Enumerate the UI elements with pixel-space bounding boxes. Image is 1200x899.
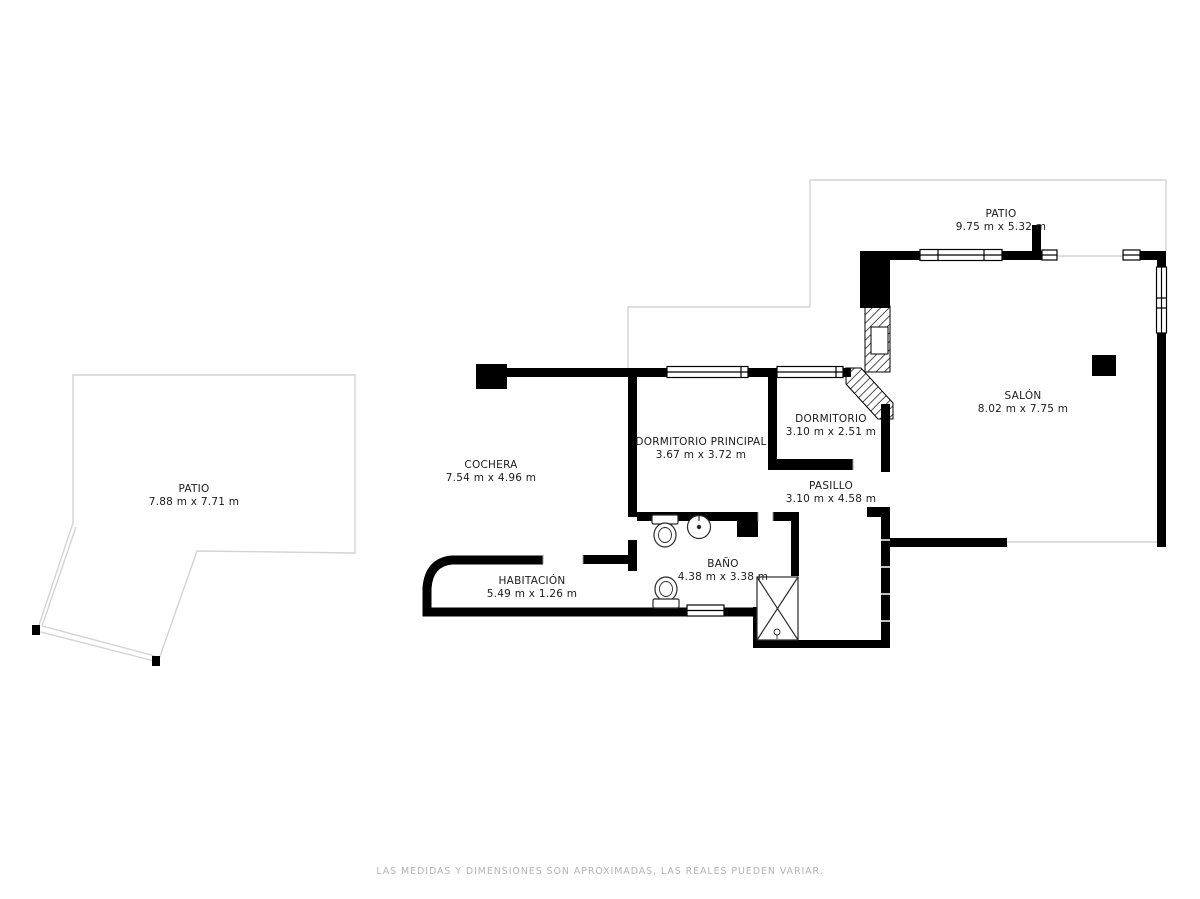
- room-dimensions: 7.88 m x 7.71 m: [149, 496, 240, 509]
- room-dimensions: 3.10 m x 4.58 m: [786, 493, 877, 506]
- room-dimensions: 9.75 m x 5.32 m: [956, 221, 1047, 234]
- room-name: PASILLO: [786, 480, 877, 493]
- room-name: DORMITORIO PRINCIPAL: [635, 436, 766, 449]
- room-dimensions: 3.10 m x 2.51 m: [786, 426, 877, 439]
- room-name: COCHERA: [446, 459, 537, 472]
- room-name: DORMITORIO: [786, 413, 877, 426]
- room-label-dormitorio-principal: DORMITORIO PRINCIPAL 3.67 m x 3.72 m: [635, 436, 766, 461]
- window-dormitorio: [777, 367, 843, 378]
- floor-plan-drawing: [0, 0, 1200, 899]
- fireplace-block: [1092, 355, 1116, 376]
- room-name: HABITACIÓN: [487, 575, 578, 588]
- room-dimensions: 7.54 m x 4.96 m: [446, 472, 537, 485]
- room-dimensions: 5.49 m x 1.26 m: [487, 588, 578, 601]
- disclaimer-text: LAS MEDIDAS Y DIMENSIONES SON APROXIMADA…: [0, 866, 1200, 877]
- room-label-salon: SALÓN 8.02 m x 7.75 m: [978, 390, 1069, 415]
- window-salon-right: [1157, 267, 1167, 333]
- toilet-top: [652, 515, 678, 547]
- sink: [688, 516, 711, 539]
- window-salon-top: [920, 250, 1002, 261]
- room-label-habitacion: HABITACIÓN 5.49 m x 1.26 m: [487, 575, 578, 600]
- room-label-pasillo: PASILLO 3.10 m x 4.58 m: [786, 480, 877, 505]
- room-dimensions: 3.67 m x 3.72 m: [635, 449, 766, 462]
- room-label-bano: BAÑO 4.38 m x 3.38 m: [678, 558, 769, 583]
- patio-left-outline: [37, 375, 355, 662]
- room-label-cochera: COCHERA 7.54 m x 4.96 m: [446, 459, 537, 484]
- room-label-patio-left: PATIO 7.88 m x 7.71 m: [149, 483, 240, 508]
- hatched-wall-column: [865, 306, 890, 372]
- window-bano: [687, 605, 724, 616]
- pillar: [476, 364, 507, 389]
- toilet-bottom: [653, 577, 679, 608]
- room-label-patio-top: PATIO 9.75 m x 5.32 m: [956, 208, 1047, 233]
- wall-niche: [871, 327, 888, 354]
- diagonal-hatched-wall: [846, 368, 893, 419]
- room-name: SALÓN: [978, 390, 1069, 403]
- room-name: PATIO: [956, 208, 1047, 221]
- door-jambs: [543, 459, 853, 564]
- window-salon-top-small-2: [1123, 250, 1140, 260]
- room-dimensions: 8.02 m x 7.75 m: [978, 403, 1069, 416]
- room-label-dormitorio: DORMITORIO 3.10 m x 2.51 m: [786, 413, 877, 438]
- room-name: PATIO: [149, 483, 240, 496]
- patio-top-outline: [628, 180, 1166, 368]
- floor-plan-page: PATIO 9.75 m x 5.32 m SALÓN 8.02 m x 7.7…: [0, 0, 1200, 899]
- window-dormitorio-principal: [667, 367, 748, 378]
- room-dimensions: 4.38 m x 3.38 m: [678, 571, 769, 584]
- room-name: BAÑO: [678, 558, 769, 571]
- window-salon-top-small-1: [1042, 250, 1057, 260]
- shower: [757, 577, 798, 640]
